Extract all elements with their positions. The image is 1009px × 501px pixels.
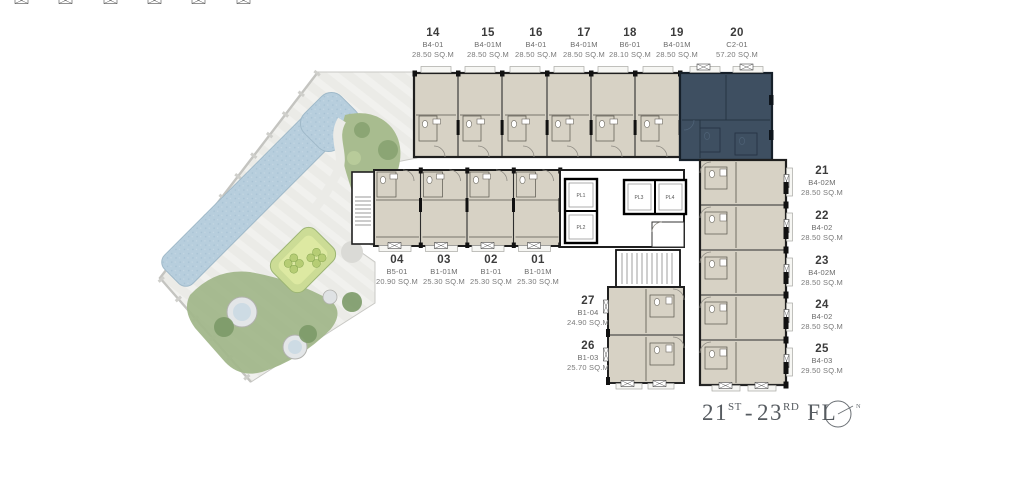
unit-type: B4-03 — [801, 356, 843, 366]
unit-number: 19 — [656, 27, 698, 40]
unit-label-25: 25 B4-03 29.50 SQ.M — [801, 343, 843, 376]
unit-area: 28.10 SQ.M — [609, 50, 651, 60]
elevator-pl3-label: PL3 — [635, 195, 644, 201]
floor-ordinal-start: ST — [728, 401, 742, 413]
unit-number: 20 — [716, 27, 758, 40]
unit-label-24: 24 B4-02 28.50 SQ.M — [801, 299, 843, 332]
floor-num-start: 21 — [702, 400, 728, 425]
unit-region-27[interactable] — [608, 287, 684, 335]
unit-region-17[interactable] — [547, 73, 591, 157]
floor-ordinal-end: RD — [783, 401, 799, 413]
unit-number: 27 — [567, 295, 609, 308]
unit-region-24[interactable] — [700, 295, 786, 340]
unit-region-14[interactable] — [414, 73, 458, 157]
unit-number: 18 — [609, 27, 651, 40]
unit-region-02[interactable] — [467, 170, 513, 246]
unit-type: B1-01M — [517, 267, 559, 277]
unit-number: 03 — [423, 254, 465, 267]
unit-area: 28.50 SQ.M — [801, 322, 843, 332]
unit-region-15[interactable] — [458, 73, 503, 157]
stairwell-central — [616, 250, 680, 287]
unit-type: B4-01 — [515, 40, 557, 50]
unit-type: B4-01M — [656, 40, 698, 50]
unit-label-15: 15 B4-01M 28.50 SQ.M — [467, 27, 509, 60]
unit-region-01[interactable] — [513, 170, 560, 246]
unit-label-21: 21 B4-02M 28.50 SQ.M — [801, 165, 843, 198]
unit-area: 25.30 SQ.M — [423, 277, 465, 287]
unit-region-25[interactable] — [700, 340, 786, 385]
unit-type: B1-01M — [423, 267, 465, 277]
unit-label-03: 03 B1-01M 25.30 SQ.M — [423, 254, 465, 287]
unit-number: 22 — [801, 210, 843, 223]
unit-region-04[interactable] — [374, 170, 420, 246]
unit-area: 57.20 SQ.M — [716, 50, 758, 60]
unit-number: 25 — [801, 343, 843, 356]
unit-area: 25.30 SQ.M — [517, 277, 559, 287]
unit-label-04: 04 B5-01 20.90 SQ.M — [376, 254, 418, 287]
elevator-pl1-label: PL1 — [577, 193, 586, 199]
unit-label-26: 26 B1-03 25.70 SQ.M — [567, 340, 609, 373]
unit-number: 16 — [515, 27, 557, 40]
unit-type: B1-03 — [567, 353, 609, 363]
unit-number: 23 — [801, 255, 843, 268]
elevator-pl2-label: PL2 — [577, 225, 586, 231]
unit-label-18: 18 B6-01 28.10 SQ.M — [609, 27, 651, 60]
unit-region-22[interactable] — [700, 205, 786, 250]
stairwell-west — [352, 172, 374, 244]
unit-label-27: 27 B1-04 24.90 SQ.M — [567, 295, 609, 328]
unit-area: 28.50 SQ.M — [656, 50, 698, 60]
unit-label-23: 23 B4-02M 28.50 SQ.M — [801, 255, 843, 288]
unit-label-14: 14 B4-01 28.50 SQ.M — [412, 27, 454, 60]
floor-num-end: 23 — [757, 400, 783, 425]
unit-type: B4-02M — [801, 178, 843, 188]
unit-number: 14 — [412, 27, 454, 40]
unit-area: 28.50 SQ.M — [801, 233, 843, 243]
unit-label-02: 02 B1-01 25.30 SQ.M — [470, 254, 512, 287]
floor-separator: - — [745, 400, 754, 425]
unit-type: B4-01M — [467, 40, 509, 50]
unit-label-19: 19 B4-01M 28.50 SQ.M — [656, 27, 698, 60]
unit-number: 15 — [467, 27, 509, 40]
floor-suffix: FL — [807, 400, 837, 425]
unit-area: 25.30 SQ.M — [470, 277, 512, 287]
unit-number: 04 — [376, 254, 418, 267]
unit-type: B4-02M — [801, 268, 843, 278]
unit-label-17: 17 B4-01M 28.50 SQ.M — [563, 27, 605, 60]
unit-type: C2-01 — [716, 40, 758, 50]
compass-north-label: N — [856, 403, 861, 410]
unit-number: 17 — [563, 27, 605, 40]
unit-label-01: 01 B1-01M 25.30 SQ.M — [517, 254, 559, 287]
unit-region-26[interactable] — [608, 335, 684, 383]
unit-area: 28.50 SQ.M — [467, 50, 509, 60]
floorplan-page: PL1 PL2 PL3 PL4 — [0, 0, 1009, 501]
unit-area: 28.50 SQ.M — [801, 188, 843, 198]
unit-number: 26 — [567, 340, 609, 353]
unit-region-18[interactable] — [591, 73, 636, 157]
unit-number: 01 — [517, 254, 559, 267]
unit-area: 24.90 SQ.M — [567, 318, 609, 328]
unit-type: B1-04 — [567, 308, 609, 318]
unit-region-19[interactable] — [636, 73, 680, 157]
unit-label-22: 22 B4-02 28.50 SQ.M — [801, 210, 843, 243]
unit-area: 20.90 SQ.M — [376, 277, 418, 287]
unit-area: 29.50 SQ.M — [801, 366, 843, 376]
unit-region-21[interactable] — [700, 160, 786, 205]
unit-area: 28.50 SQ.M — [515, 50, 557, 60]
floor-range-label: 21ST-23RDFL — [702, 400, 837, 426]
unit-area: 28.50 SQ.M — [801, 278, 843, 288]
unit-number: 21 — [801, 165, 843, 178]
unit-area: 28.50 SQ.M — [563, 50, 605, 60]
unit-type: B1-01 — [470, 267, 512, 277]
unit-label-20: 20 C2-01 57.20 SQ.M — [716, 27, 758, 60]
elevator-core: PL1 PL2 PL3 PL4 — [560, 170, 686, 247]
unit-area: 28.50 SQ.M — [412, 50, 454, 60]
unit-label-16: 16 B4-01 28.50 SQ.M — [515, 27, 557, 60]
unit-region-20[interactable] — [680, 73, 772, 160]
unit-type: B4-02 — [801, 223, 843, 233]
unit-region-23[interactable] — [700, 250, 786, 295]
elevator-pl4-label: PL4 — [666, 195, 675, 201]
unit-type: B4-01 — [412, 40, 454, 50]
unit-type: B6-01 — [609, 40, 651, 50]
unit-area: 25.70 SQ.M — [567, 363, 609, 373]
unit-number: 02 — [470, 254, 512, 267]
floorplan-drawing: PL1 PL2 PL3 PL4 — [0, 0, 1009, 501]
unit-type: B4-01M — [563, 40, 605, 50]
unit-number: 24 — [801, 299, 843, 312]
unit-type: B5-01 — [376, 267, 418, 277]
unit-type: B4-02 — [801, 312, 843, 322]
unit-region-03[interactable] — [420, 170, 467, 246]
unit-region-16[interactable] — [503, 73, 547, 157]
